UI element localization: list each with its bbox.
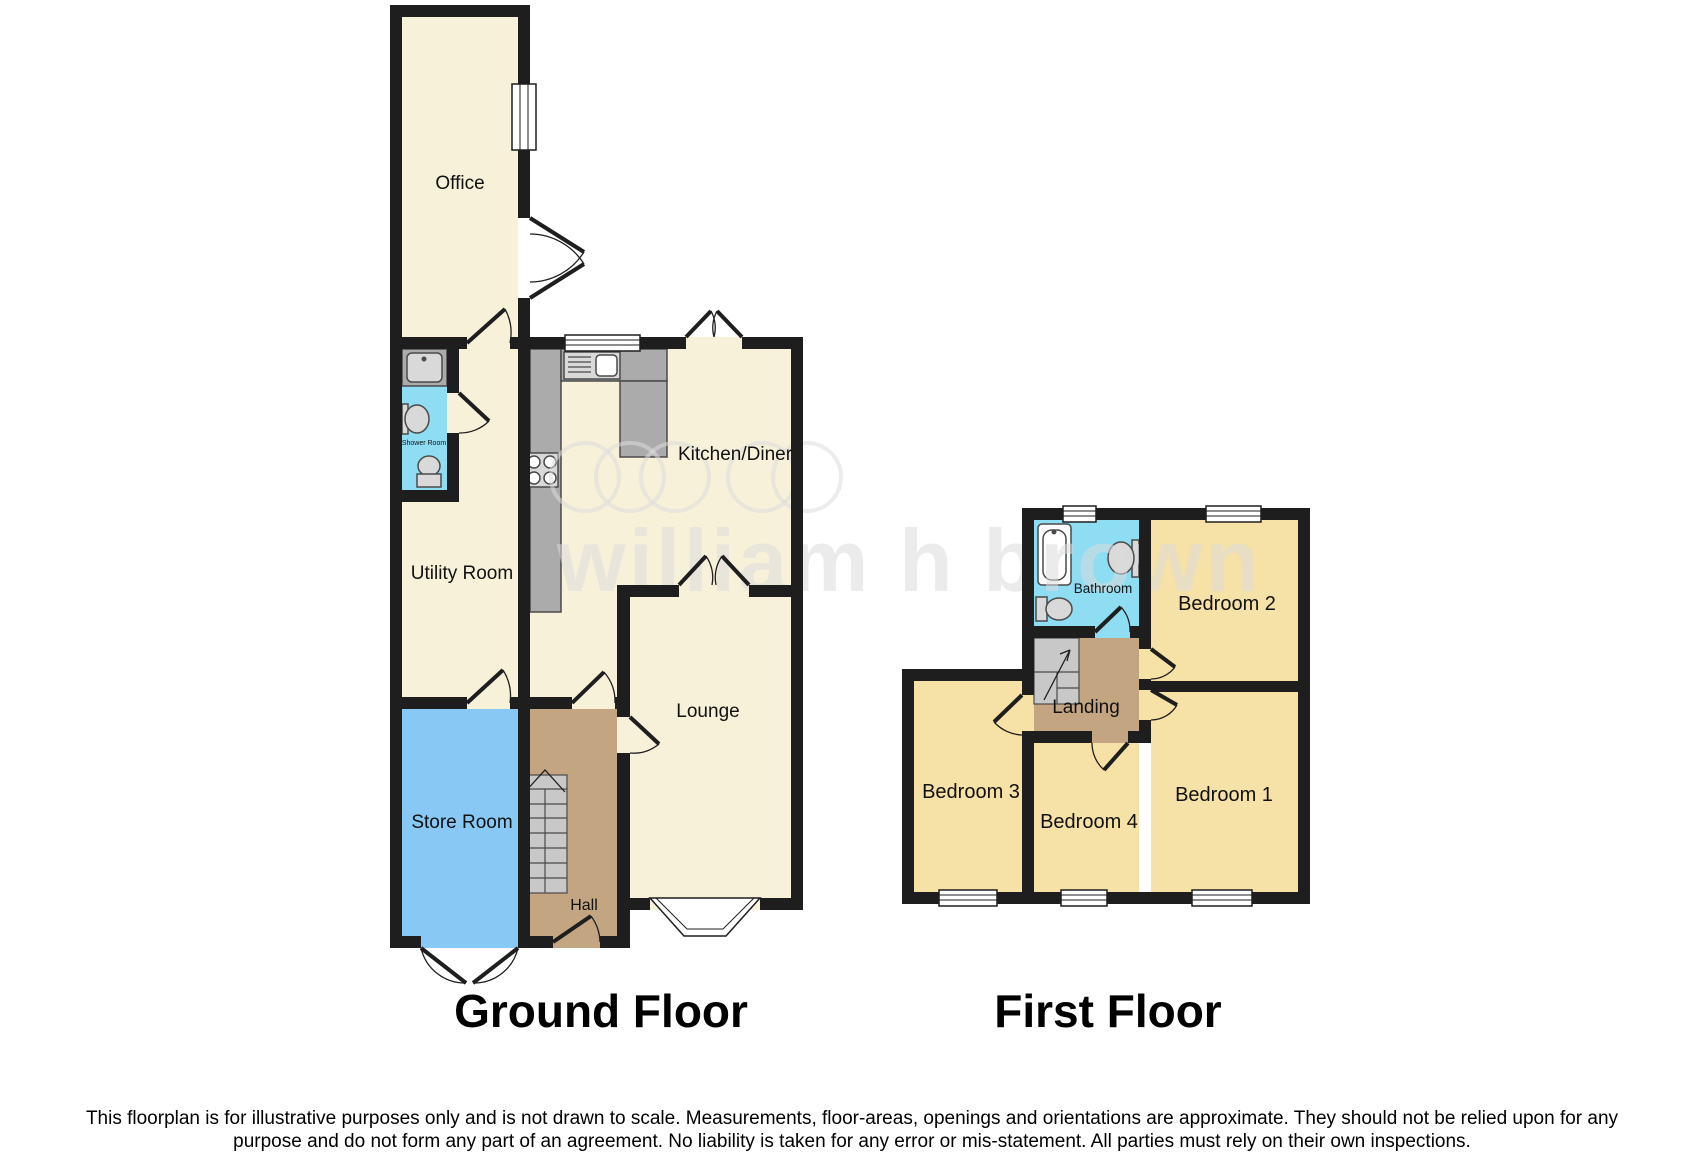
bedroom1-label: Bedroom 1 (1175, 784, 1273, 806)
hall-label: Hall (570, 897, 598, 914)
door-gap-fill (421, 936, 518, 948)
bedroom3-label: Bedroom 3 (922, 781, 1020, 803)
door-gap-fill (1139, 649, 1151, 679)
lounge-label: Lounge (676, 701, 739, 722)
store-room-double-doors (421, 948, 518, 983)
kitchen-window (565, 335, 640, 351)
bedroom4-label: Bedroom 4 (1040, 811, 1138, 833)
kitchen-double-doors (686, 311, 742, 337)
door-gap-fill (617, 717, 630, 753)
floorplan-drawing: william h brown (0, 0, 1704, 1152)
landing-label: Landing (1052, 697, 1120, 718)
office-window (512, 84, 536, 150)
door-gap-fill (1092, 731, 1128, 743)
floor-titles: Ground Floor First Floor (454, 985, 1222, 1037)
door-gap-fill (1139, 690, 1151, 720)
office-double-door (530, 218, 584, 298)
bathroom-window (1063, 506, 1096, 522)
floorplan-page: william h brown (0, 0, 1704, 1152)
first-floor-title: First Floor (994, 985, 1222, 1037)
bedroom1-window (1192, 890, 1252, 906)
office-label: Office (435, 173, 484, 194)
shower-sink-faucet (422, 357, 427, 362)
kitchen-sink-bowl (596, 355, 617, 376)
bedroom4-window (1061, 890, 1107, 906)
shower-room-label: Shower Room (402, 440, 447, 447)
disclaimer-line-1: This floorplan is for illustrative purpo… (86, 1108, 1619, 1129)
bathroom-label: Bathroom (1074, 581, 1133, 596)
bedroom3-window (939, 890, 997, 906)
door-gap-fill (447, 393, 459, 433)
disclaimer-line-2: purpose and do not form any part of an a… (233, 1131, 1471, 1152)
utility-room-label: Utility Room (411, 563, 513, 584)
kitchen-diner-label: Kitchen/Diner (678, 444, 793, 465)
basin (405, 405, 429, 433)
toilet-bowl (418, 456, 440, 476)
store-room-label: Store Room (411, 812, 512, 833)
door-gap-fill (686, 337, 742, 349)
toilet-cistern (417, 474, 441, 487)
lounge-bay-window (650, 898, 760, 936)
bedroom2-window (1206, 506, 1261, 522)
ground-floor-title: Ground Floor (454, 985, 748, 1037)
door-gap-fill (1022, 695, 1034, 735)
disclaimer: This floorplan is for illustrative purpo… (86, 1108, 1619, 1152)
bedroom2-label: Bedroom 2 (1178, 593, 1276, 615)
